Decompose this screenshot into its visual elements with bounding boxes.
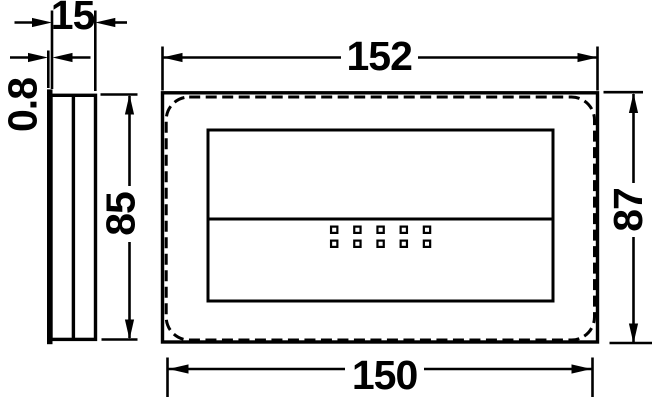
svg-text:85: 85 (98, 192, 144, 236)
svg-text:150: 150 (352, 352, 418, 398)
svg-text:0.8: 0.8 (0, 78, 46, 132)
svg-text:152: 152 (346, 33, 412, 79)
svg-text:87: 87 (605, 188, 651, 232)
svg-text:15: 15 (51, 0, 95, 38)
